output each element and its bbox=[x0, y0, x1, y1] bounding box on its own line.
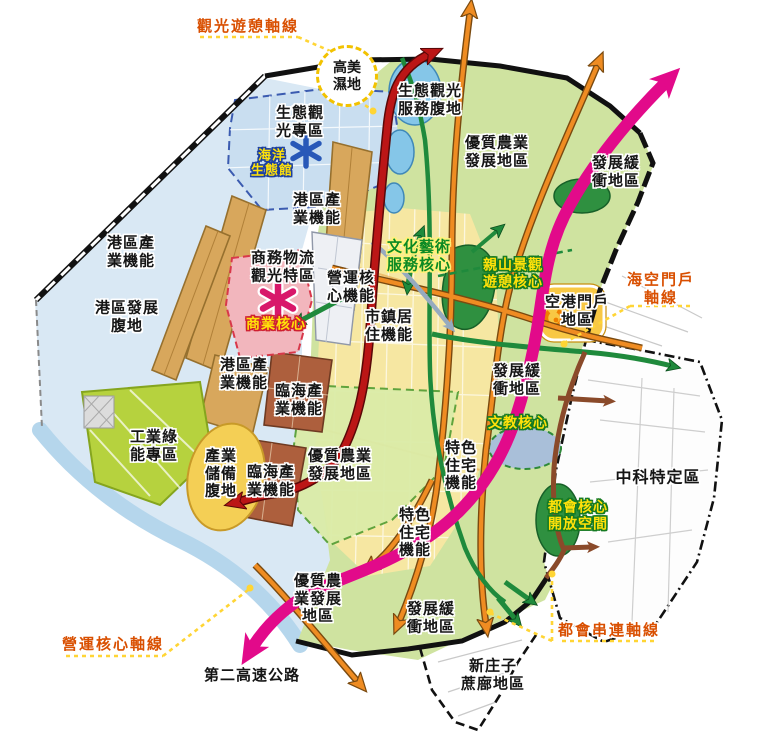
outside-mesh-ne bbox=[592, 276, 702, 346]
planning-map: 觀光遊憩軸線 高美 濕地 生態觀光 服務腹地 優質農業 發展地區 發展緩 衝地區… bbox=[0, 0, 773, 750]
commerce-star-icon bbox=[263, 283, 293, 317]
map-canvas bbox=[0, 0, 773, 750]
